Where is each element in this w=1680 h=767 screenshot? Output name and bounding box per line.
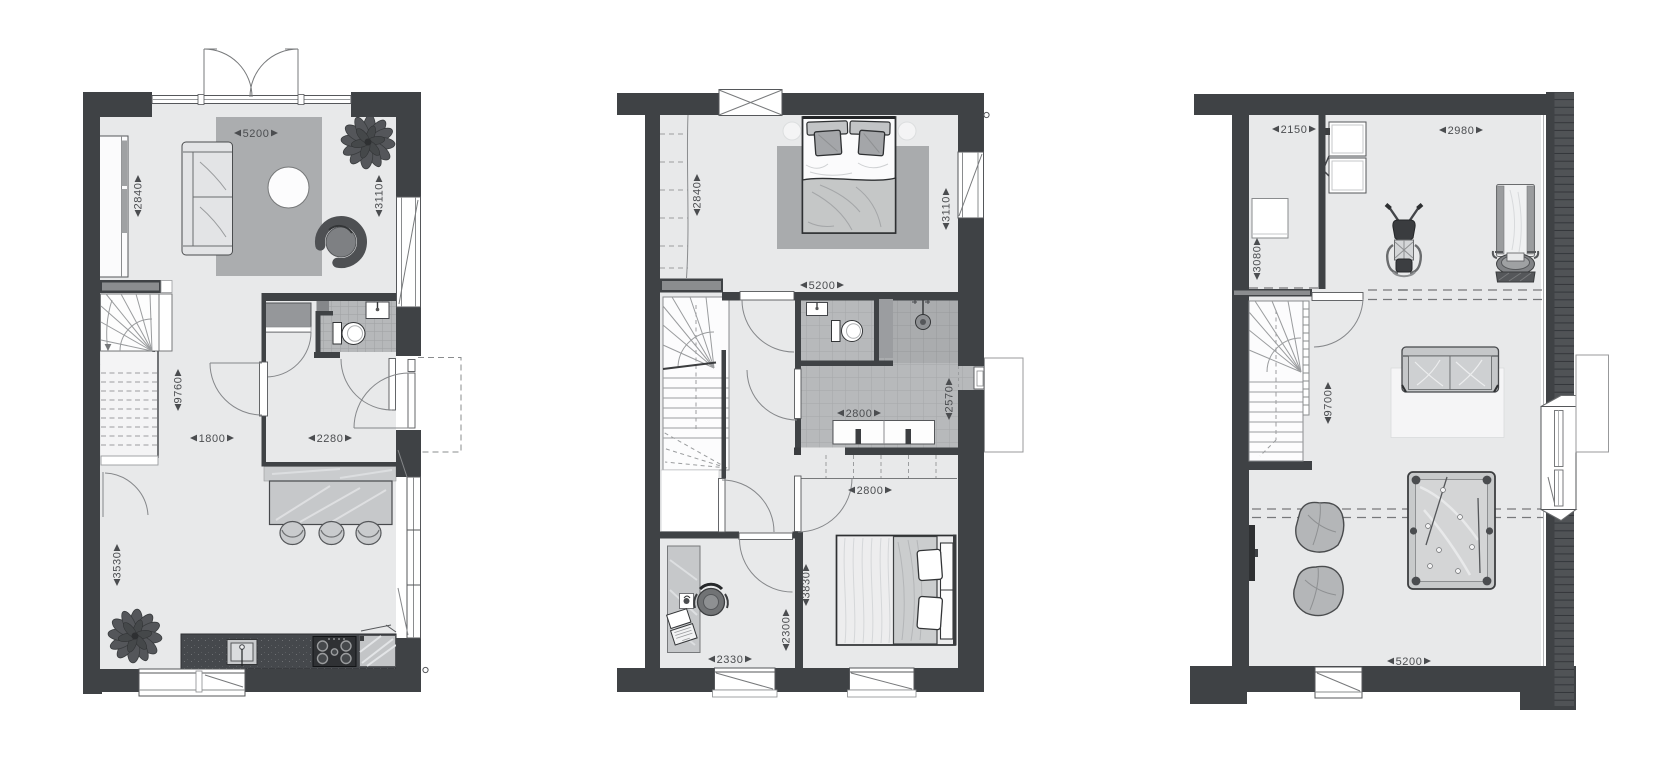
svg-text:5200: 5200 <box>243 128 270 140</box>
svg-text:2150: 2150 <box>1281 124 1308 136</box>
svg-text:3830: 3830 <box>801 572 813 599</box>
svg-text:3110: 3110 <box>374 183 386 209</box>
svg-text:9760: 9760 <box>173 377 185 404</box>
svg-text:5200: 5200 <box>809 280 836 292</box>
svg-text:5200: 5200 <box>1396 656 1423 668</box>
svg-text:9700: 9700 <box>1323 390 1335 417</box>
svg-text:2280: 2280 <box>317 433 344 445</box>
svg-text:3110: 3110 <box>941 196 953 222</box>
svg-text:2330: 2330 <box>717 654 744 666</box>
svg-text:2800: 2800 <box>846 408 873 420</box>
svg-text:1800: 1800 <box>199 433 226 445</box>
svg-text:2840: 2840 <box>692 182 704 209</box>
svg-text:2800: 2800 <box>857 485 884 497</box>
svg-text:2980: 2980 <box>1448 125 1475 137</box>
svg-text:3530: 3530 <box>112 552 124 579</box>
svg-text:2840: 2840 <box>133 183 145 210</box>
svg-text:2570: 2570 <box>944 386 956 413</box>
svg-text:2300: 2300 <box>781 617 793 644</box>
svg-text:3080: 3080 <box>1252 246 1264 273</box>
